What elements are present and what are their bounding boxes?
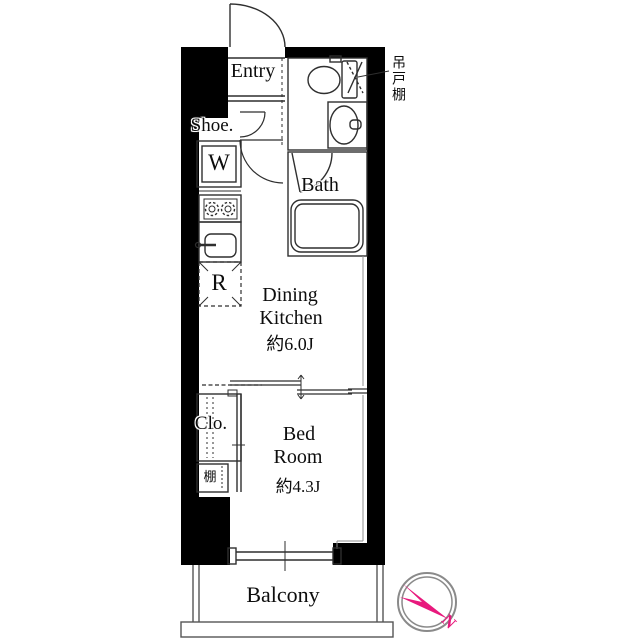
hall-doors [240,112,283,183]
entry-area [228,4,285,101]
kitchen-sink-icon [196,222,242,262]
bedroom-label-line2: Room [274,447,323,467]
slide-direction-arrow [298,375,304,399]
shoe-door-arc [240,112,265,137]
bedroom-label-line1: Bed [283,424,315,444]
shoe-cabinet-label: Shoe. [191,116,234,135]
washbasin-icon [328,102,367,148]
closet-label: Clo. [195,414,227,433]
entry-label: Entry [231,61,275,81]
sliding-panel-2 [297,390,352,394]
balcony-wall-left [193,565,199,622]
balcony-wall-right [377,565,383,622]
bedroom-size: 約4.3J [276,478,321,495]
wall-right [367,47,385,565]
floor-plan: Entry Shoe. W Bath 吊戸棚 R Dining Kitchen … [0,0,640,640]
compass-needle [400,584,448,619]
wall-top-seg-left [199,47,228,58]
partition-sliding-door [202,375,367,399]
closet-top-tab [228,390,237,396]
dining-kitchen-size: 約6.0J [266,335,314,353]
partition-wall-right [348,389,367,393]
balcony-label: Balcony [246,584,319,606]
bathtub-icon [291,200,363,252]
wall-bottom-left-block [181,497,230,565]
washing-machine-label: W [208,151,230,174]
wall-top-seg-right [285,47,367,58]
stove-icon [199,195,241,222]
balcony-window [228,541,341,571]
balcony-railing [181,622,393,637]
inner-face-lines [337,256,363,549]
hanging-cupboard-icon [347,62,363,93]
dining-kitchen-label-line2: Kitchen [259,308,322,328]
dining-kitchen-label-line1: Dining [262,285,318,305]
toilet-icon [308,56,357,98]
refrigerator-label: R [211,271,226,294]
dk-door-arc [240,140,283,183]
sliding-panel-1 [230,381,301,385]
closet-right-wall [237,394,241,492]
bath-door-panel [292,153,300,192]
bath-label: Bath [301,175,339,195]
wall-bottom-right-block [333,543,369,565]
shelf-label: 棚 [203,470,216,483]
bath-room [288,152,367,256]
hanging-cupboard-label: 吊戸棚 [390,55,404,103]
entry-door-arc [230,4,285,47]
bedroom-right-face-line [337,395,363,549]
